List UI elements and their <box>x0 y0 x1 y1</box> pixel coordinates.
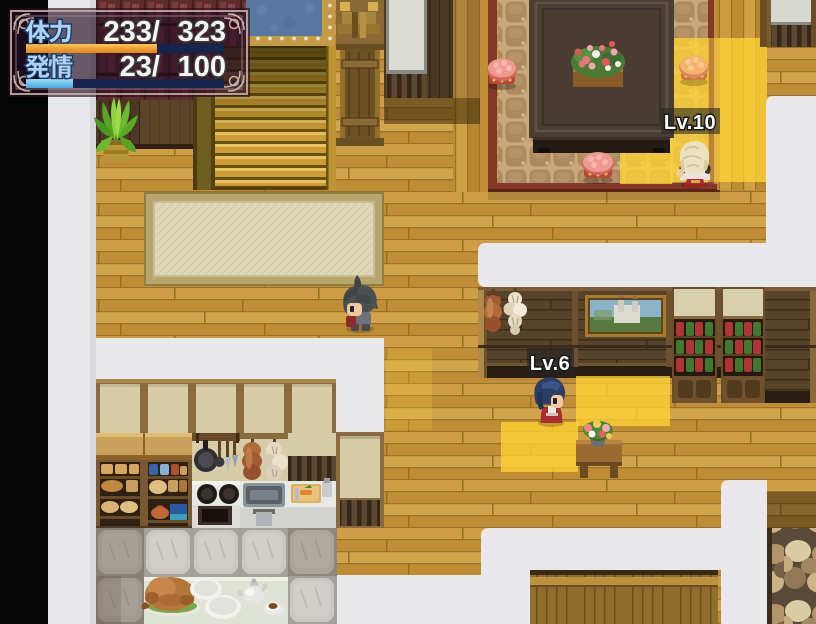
svg-text:323: 323 <box>178 16 226 48</box>
svg-text:Lv.10: Lv.10 <box>664 112 716 134</box>
svg-text:233/: 233/ <box>104 16 160 48</box>
svg-text:23/: 23/ <box>120 51 160 83</box>
svg-text:100: 100 <box>178 51 226 83</box>
svg-text:Lv.6: Lv.6 <box>530 353 571 375</box>
